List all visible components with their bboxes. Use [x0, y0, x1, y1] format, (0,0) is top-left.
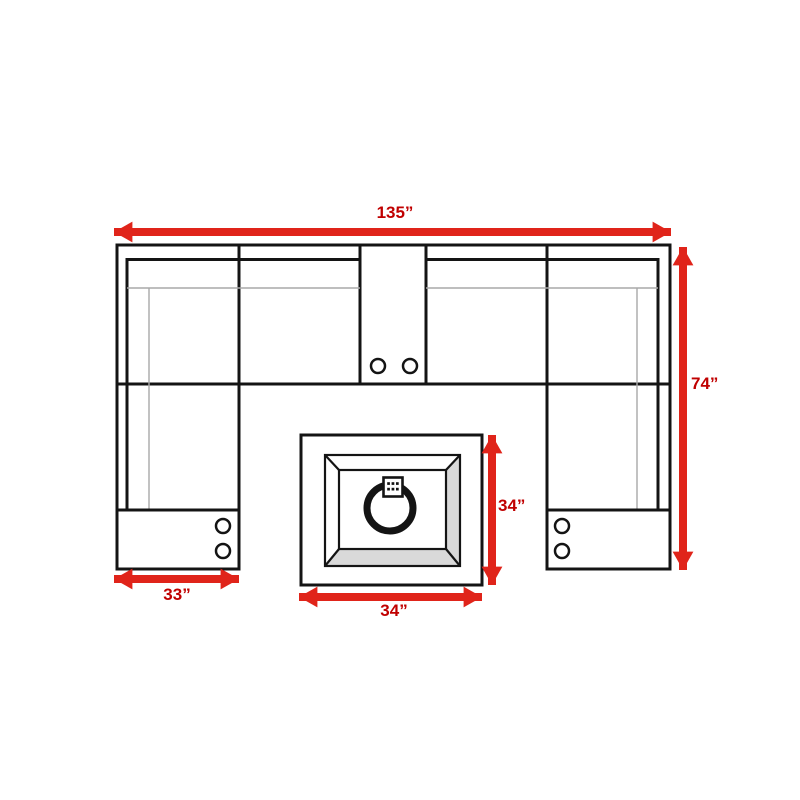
- console-cup-holder-icon: [371, 359, 385, 373]
- console-cup-holder-icon: [403, 359, 417, 373]
- fire-pit-bevel-bottom: [325, 549, 460, 566]
- right-arm-cup-holder-icon: [555, 519, 569, 533]
- left-arm-cup-holder-icon: [216, 544, 230, 558]
- fire-pit-bevel-right: [446, 455, 460, 566]
- floor-plan-canvas: 135” 74” 33” 34” 34”: [0, 0, 800, 800]
- overall-depth-label: 74”: [691, 374, 718, 393]
- floor-plan-drawing: [0, 0, 800, 800]
- fire-pit-depth-label: 34”: [498, 496, 525, 515]
- left-arm-cup-holder-icon: [216, 519, 230, 533]
- overall-width-label: 135”: [345, 203, 445, 222]
- chaise-width-label: 33”: [127, 585, 227, 604]
- fire-pit-table: [301, 435, 482, 585]
- right-arm-cup-holder-icon: [555, 544, 569, 558]
- burner-control-icon: [384, 478, 403, 497]
- fire-pit-width-label: 34”: [341, 601, 447, 620]
